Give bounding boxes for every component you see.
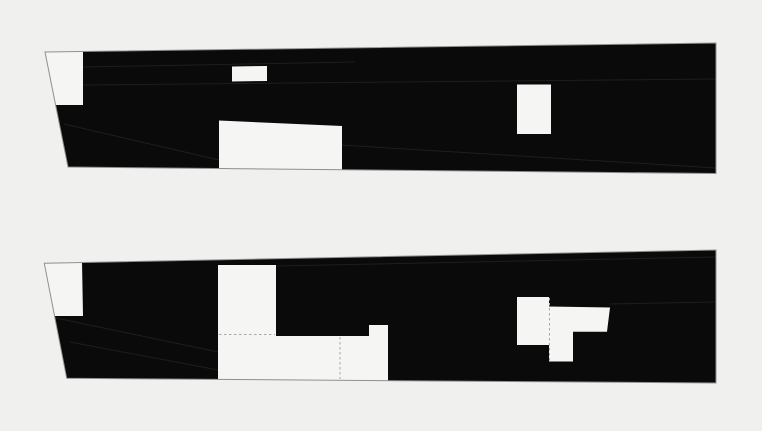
- artwork-canvas: [0, 0, 762, 431]
- opening-bottom-left-trapezoid: [44, 262, 83, 316]
- elevation-top: [45, 43, 716, 174]
- opening-right-rect: [517, 85, 551, 135]
- opening-large-rect-bottom: [219, 121, 342, 170]
- elevation-bottom: [44, 250, 716, 383]
- elevation-figure: [0, 0, 762, 431]
- opening-small-rect: [232, 66, 267, 82]
- elevation-top-body: [45, 43, 716, 174]
